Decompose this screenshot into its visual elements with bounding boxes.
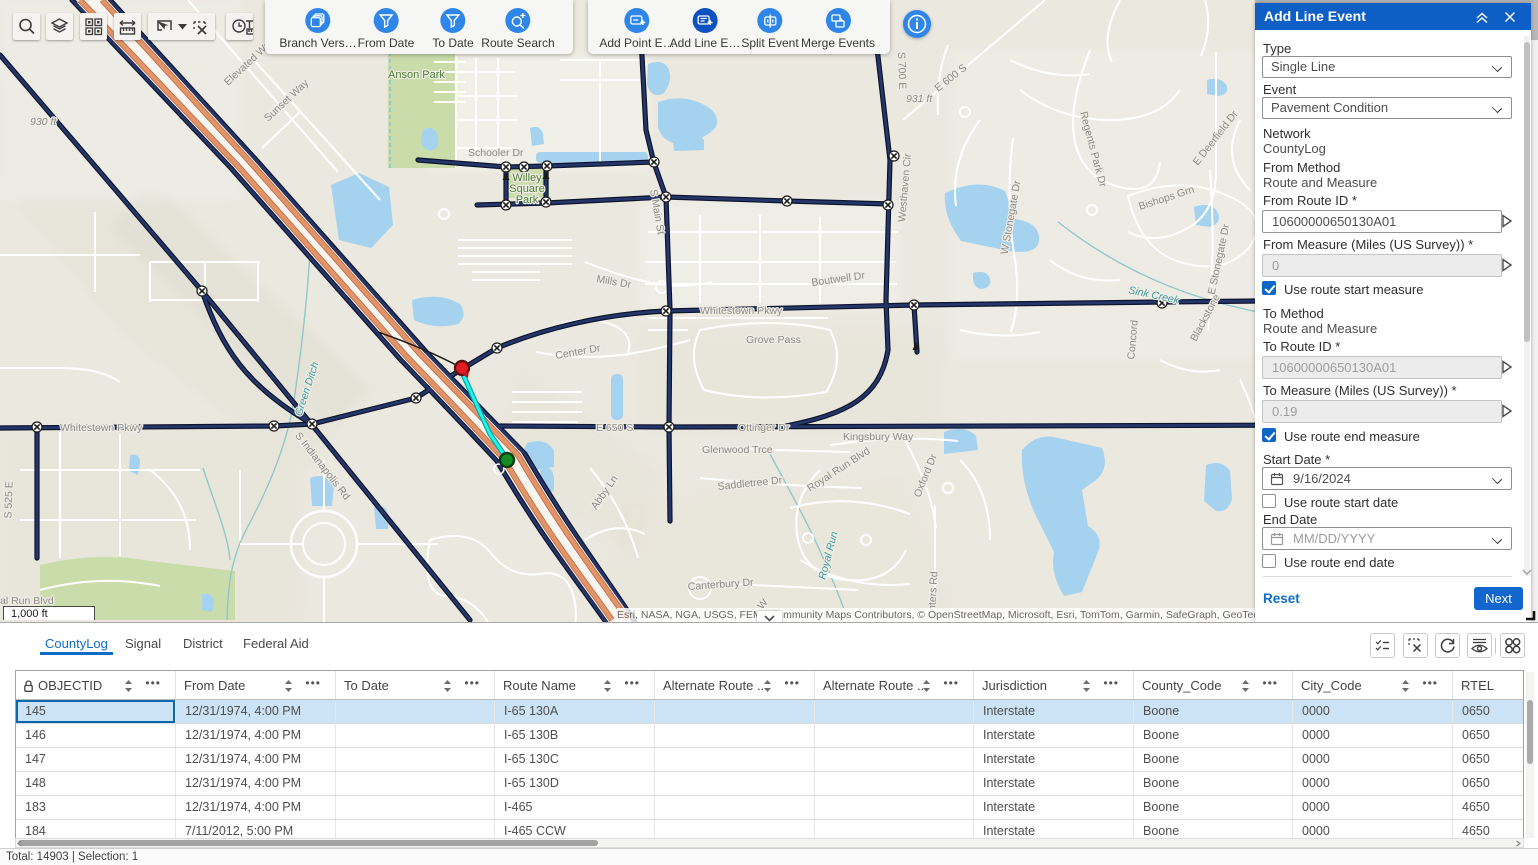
svg-text:Anson Park: Anson Park: [388, 69, 445, 81]
svg-text:Whitestown Pkwy: Whitestown Pkwy: [60, 422, 143, 434]
svg-text:Park: Park: [516, 194, 539, 206]
svg-text:931 ft: 931 ft: [906, 93, 933, 105]
svg-text:Schooler Dr: Schooler Dr: [468, 147, 524, 159]
svg-text:Kingsbury Way: Kingsbury Way: [843, 431, 914, 443]
svg-text:Ottinger Dr: Ottinger Dr: [738, 422, 790, 434]
svg-text:Glenwood Trce: Glenwood Trce: [702, 444, 773, 456]
svg-text:Grove Pass: Grove Pass: [746, 334, 801, 346]
svg-text:930 ft: 930 ft: [30, 116, 57, 128]
svg-text:Whitestown Pkwy: Whitestown Pkwy: [700, 305, 783, 317]
svg-text:S 700 E: S 700 E: [895, 52, 908, 90]
svg-text:S 525 E: S 525 E: [2, 481, 15, 519]
svg-text:E 650 S: E 650 S: [596, 422, 633, 434]
